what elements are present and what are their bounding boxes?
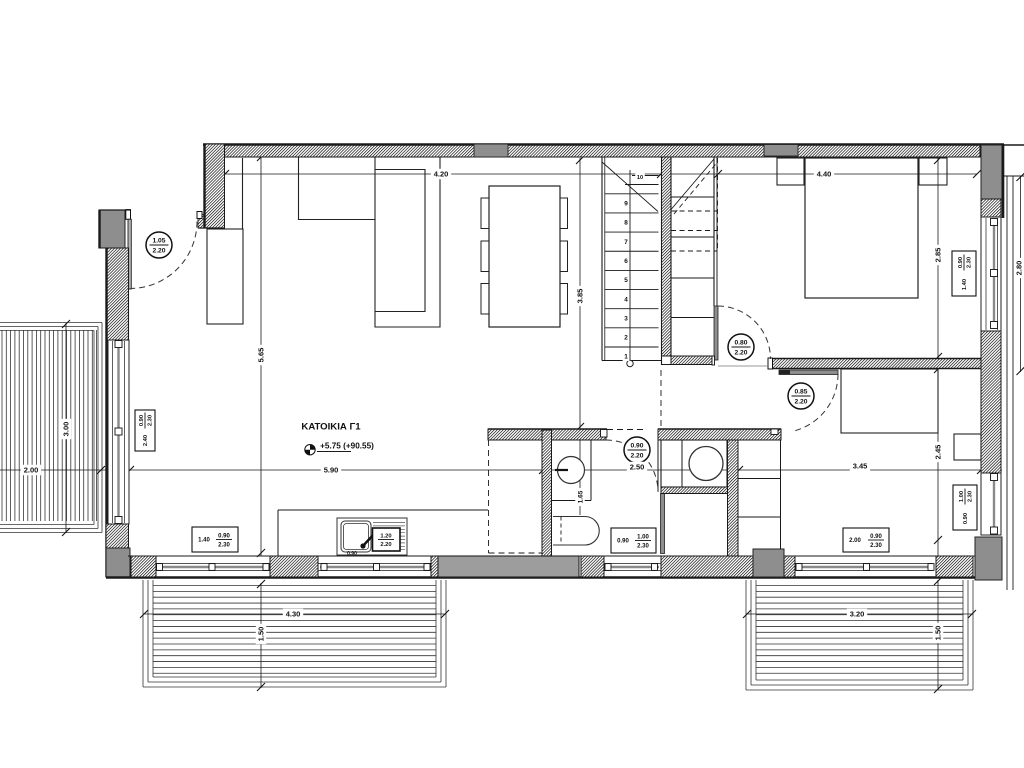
svg-text:2.85: 2.85 xyxy=(934,248,943,263)
svg-text:6: 6 xyxy=(624,258,628,265)
svg-text:5: 5 xyxy=(624,277,628,284)
svg-text:4.20: 4.20 xyxy=(434,170,449,179)
svg-text:0.90: 0.90 xyxy=(617,539,629,545)
svg-text:1.00: 1.00 xyxy=(637,534,649,540)
svg-text:0.90: 0.90 xyxy=(630,443,643,450)
svg-text:1.40: 1.40 xyxy=(198,538,210,544)
svg-text:10: 10 xyxy=(637,175,643,181)
svg-text:1.40: 1.40 xyxy=(962,279,968,290)
svg-text:2.80: 2.80 xyxy=(1015,261,1024,276)
svg-text:9: 9 xyxy=(624,201,628,208)
svg-text:2.40: 2.40 xyxy=(143,435,149,446)
svg-text:2.30: 2.30 xyxy=(968,491,974,502)
svg-text:0.90: 0.90 xyxy=(958,257,964,268)
svg-text:1.50: 1.50 xyxy=(257,627,266,642)
svg-text:2.00: 2.00 xyxy=(849,538,861,544)
svg-text:3.85: 3.85 xyxy=(576,289,585,304)
svg-text:2.20: 2.20 xyxy=(630,453,643,460)
svg-text:1.05: 1.05 xyxy=(152,238,165,245)
svg-text:2.00: 2.00 xyxy=(24,466,39,475)
svg-text:5.65: 5.65 xyxy=(257,348,266,363)
svg-text:2.45: 2.45 xyxy=(934,445,943,460)
svg-text:1: 1 xyxy=(624,354,628,361)
svg-text:1.50: 1.50 xyxy=(934,626,943,641)
svg-text:2.30: 2.30 xyxy=(967,257,973,268)
svg-text:2.30: 2.30 xyxy=(870,543,882,549)
svg-text:3.45: 3.45 xyxy=(853,462,868,471)
svg-text:+5.75 (+90.55): +5.75 (+90.55) xyxy=(320,441,374,450)
svg-text:4.30: 4.30 xyxy=(286,610,301,619)
svg-text:4.40: 4.40 xyxy=(817,170,832,179)
svg-text:0.90: 0.90 xyxy=(139,415,145,426)
svg-text:7: 7 xyxy=(624,239,628,246)
svg-text:8: 8 xyxy=(624,220,628,227)
svg-text:ΚΑΤΟΙΚΙΑ Γ1: ΚΑΤΟΙΚΙΑ Γ1 xyxy=(301,421,361,432)
svg-text:3.00: 3.00 xyxy=(62,422,71,437)
svg-text:1.00: 1.00 xyxy=(959,491,965,502)
svg-text:1.65: 1.65 xyxy=(577,490,584,503)
svg-text:2.30: 2.30 xyxy=(637,543,649,549)
svg-text:0.90: 0.90 xyxy=(218,533,230,539)
svg-text:2.30: 2.30 xyxy=(218,542,230,548)
svg-text:2: 2 xyxy=(624,335,628,342)
svg-text:3.20: 3.20 xyxy=(850,610,865,619)
svg-text:2.20: 2.20 xyxy=(794,399,807,406)
svg-text:0.80: 0.80 xyxy=(734,340,747,347)
svg-text:0.85: 0.85 xyxy=(794,389,807,396)
svg-text:2.50: 2.50 xyxy=(630,463,645,472)
svg-text:3: 3 xyxy=(624,315,628,322)
svg-text:5.90: 5.90 xyxy=(324,466,339,475)
svg-text:2.20: 2.20 xyxy=(152,248,165,255)
svg-text:4: 4 xyxy=(624,296,628,303)
svg-text:2.20: 2.20 xyxy=(734,350,747,357)
svg-text:2.20: 2.20 xyxy=(380,542,391,548)
svg-text:1.20: 1.20 xyxy=(380,533,391,539)
svg-text:0.90: 0.90 xyxy=(870,534,882,540)
svg-text:2.30: 2.30 xyxy=(148,415,154,426)
svg-text:0.90: 0.90 xyxy=(963,513,969,524)
